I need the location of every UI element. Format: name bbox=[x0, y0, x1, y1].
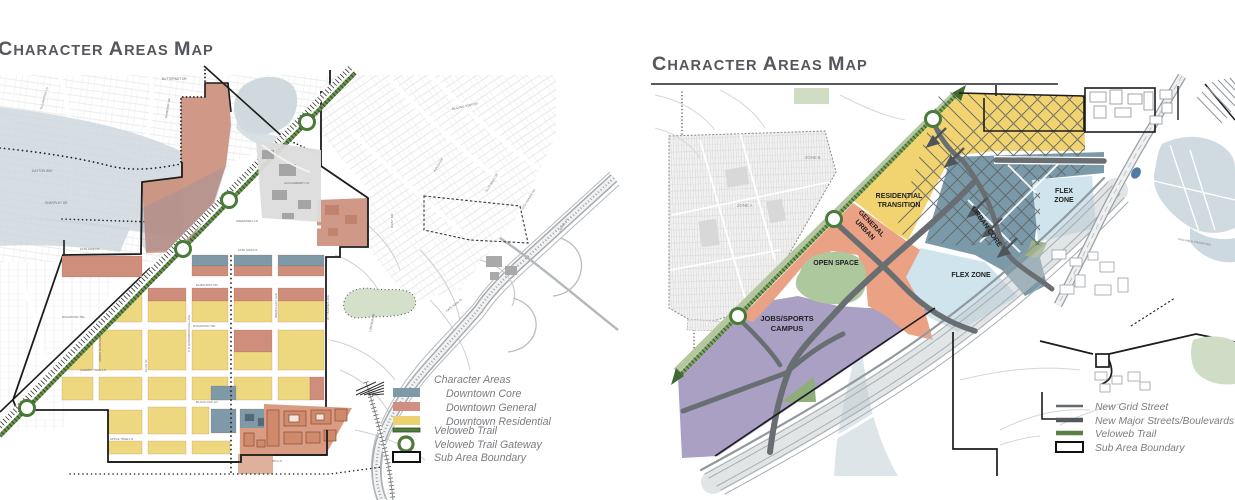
svg-text:BLACK OAK LN: BLACK OAK LN bbox=[196, 400, 218, 404]
svg-text:FLEX: FLEX bbox=[1055, 188, 1073, 195]
svg-text:FATE MAIN PL: FATE MAIN PL bbox=[238, 248, 258, 252]
svg-text:Sub Area Boundary: Sub Area Boundary bbox=[1095, 443, 1185, 454]
svg-text:CAMPUS: CAMPUS bbox=[771, 324, 804, 333]
svg-text:DAYTON WAY: DAYTON WAY bbox=[32, 169, 54, 173]
svg-text:8TH LN: 8TH LN bbox=[272, 459, 282, 463]
svg-text:RESIDENTIAL: RESIDENTIAL bbox=[876, 193, 923, 200]
svg-text:DOGWOOD TRL: DOGWOOD TRL bbox=[62, 315, 85, 319]
svg-text:ZONE: ZONE bbox=[1054, 197, 1074, 204]
svg-text:Character Areas: Character Areas bbox=[434, 374, 511, 386]
svg-text:Veloweb Trail: Veloweb Trail bbox=[434, 425, 498, 437]
svg-text:GREENWELL LN: GREENWELL LN bbox=[236, 219, 258, 223]
svg-text:JAMES GLEN AVE: JAMES GLEN AVE bbox=[98, 337, 102, 362]
svg-text:ZONE B: ZONE B bbox=[805, 155, 821, 160]
svg-text:C B GAINSBOROUGH AVE: C B GAINSBOROUGH AVE bbox=[187, 315, 191, 352]
svg-text:New Grid Street: New Grid Street bbox=[1095, 402, 1169, 413]
svg-text:ELLIS ST: ELLIS ST bbox=[144, 359, 148, 372]
svg-text:BUTTERNUT DR: BUTTERNUT DR bbox=[162, 77, 187, 81]
svg-text:DOGWOOD TRL: DOGWOOD TRL bbox=[193, 324, 216, 328]
svg-text:New Major Streets/Boulevards: New Major Streets/Boulevards bbox=[1095, 416, 1234, 427]
svg-text:TRANSITION: TRANSITION bbox=[878, 202, 921, 209]
svg-text:ZONE A: ZONE A bbox=[737, 203, 753, 208]
svg-text:BRENCHLEY AVE: BRENCHLEY AVE bbox=[274, 293, 278, 318]
svg-text:Sub Area Boundary: Sub Area Boundary bbox=[434, 452, 527, 464]
svg-text:W T BARNES AVE: W T BARNES AVE bbox=[326, 295, 330, 320]
svg-text:APPLE TREE LN: APPLE TREE LN bbox=[110, 437, 133, 441]
svg-text:Downtown Core: Downtown Core bbox=[446, 388, 521, 400]
svg-text:Veloweb Trail: Veloweb Trail bbox=[1095, 429, 1157, 440]
svg-text:FLEX ZONE: FLEX ZONE bbox=[951, 272, 991, 279]
svg-text:CHERRY TREE LN: CHERRY TREE LN bbox=[80, 368, 106, 372]
svg-text:FATE MAIN PL: FATE MAIN PL bbox=[80, 247, 100, 251]
svg-text:Downtown General: Downtown General bbox=[446, 402, 537, 414]
svg-text:SHARPLEY DR: SHARPLEY DR bbox=[45, 201, 68, 205]
svg-text:DAISY DR: DAISY DR bbox=[390, 213, 394, 228]
svg-text:JOBS/SPORTS: JOBS/SPORTS bbox=[760, 314, 813, 323]
svg-text:ELMHURST DR: ELMHURST DR bbox=[196, 283, 218, 287]
svg-text:Veloweb Trail Gateway: Veloweb Trail Gateway bbox=[434, 439, 542, 451]
svg-text:OPEN SPACE: OPEN SPACE bbox=[813, 260, 859, 267]
svg-text:FATE MAIN PL: FATE MAIN PL bbox=[445, 297, 464, 313]
svg-text:HUCKLEBERRY LN: HUCKLEBERRY LN bbox=[284, 181, 309, 185]
